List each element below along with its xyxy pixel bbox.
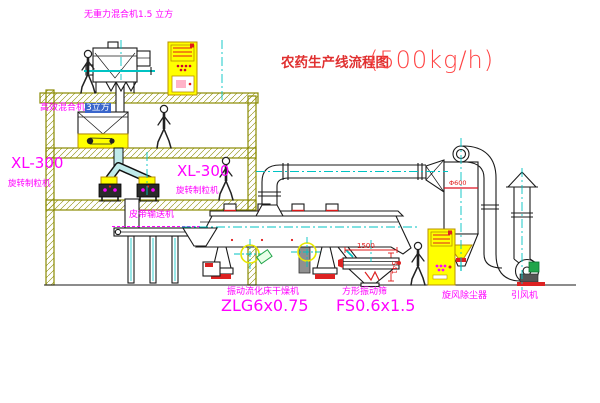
granulator-name-left: 旋转制粒机: [8, 180, 51, 189]
sieve-height-dim: 541: [390, 261, 397, 274]
person-figure-ground: [411, 242, 425, 285]
high-efficiency-mixer: [78, 112, 128, 148]
cyclone-separator: [444, 146, 521, 281]
flow-diagram-canvas: 无重力混合机1.5 立方 农药生产线流程图 (500kg/h) 高效混合机3立方…: [0, 0, 600, 403]
gravity-mixer-label: 无重力混合机1.5 立方: [84, 11, 173, 20]
granulator-name-mid: 旋转制粒机: [176, 187, 219, 196]
sieve-length-dim: 1500: [357, 243, 375, 250]
cyclone-dia-dim: Φ600: [449, 180, 467, 187]
mixer-label-text: 高效混合机: [40, 103, 85, 113]
fan-label: 引风机: [511, 292, 538, 301]
page-title-capacity: (500kg/h): [369, 48, 494, 72]
cyclone-label: 旋风除尘器: [442, 292, 487, 301]
dryer-model-label: ZLG6x0.75: [221, 298, 309, 314]
control-cabinet-top: [168, 42, 197, 95]
control-cabinet-bottom: [428, 229, 455, 285]
belt-conveyor-label: 皮带输送机: [129, 211, 174, 220]
mixer-label-highlight: 3立方: [85, 103, 111, 113]
granulator-right: [137, 177, 159, 201]
induced-draft-fan: [516, 260, 546, 287]
granulator-left: [99, 177, 121, 201]
granulator-model-left: XL-300: [11, 156, 63, 171]
person-figure-floor2: [157, 105, 171, 148]
granulator-model-mid: XL-300: [177, 164, 229, 179]
sieve-model-label: FS0.6x1.5: [336, 298, 415, 314]
high-efficiency-mixer-label: 高效混合机3立方: [40, 104, 111, 113]
exhaust-duct: [256, 160, 444, 216]
